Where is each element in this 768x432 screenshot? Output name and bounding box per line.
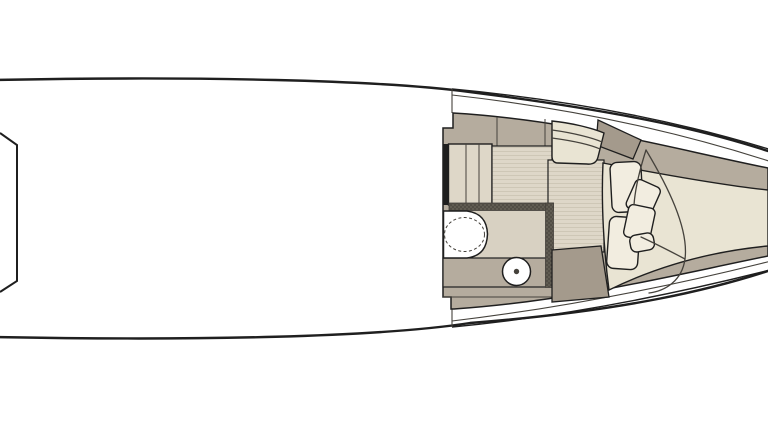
cabin-sole-fore — [548, 160, 604, 252]
basin-drain — [514, 269, 519, 274]
companionway-steps-edge — [443, 144, 449, 205]
cabin-sole — [492, 146, 552, 205]
deck-plan-drawing — [0, 0, 768, 432]
toilet — [444, 211, 488, 258]
head-wall-hatched-top — [449, 203, 554, 211]
companionway-steps — [449, 144, 493, 205]
helm-console-partial — [0, 133, 17, 292]
wardrobe-locker — [552, 246, 609, 302]
boat-deck-plan — [0, 0, 768, 432]
